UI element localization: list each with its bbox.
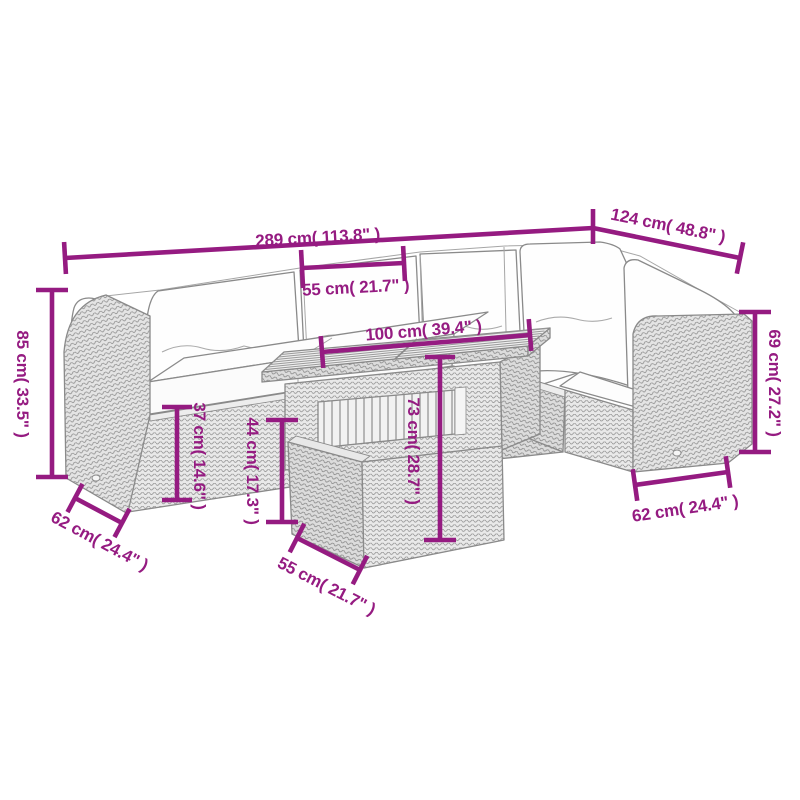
cube-right-panel (362, 446, 504, 568)
dimension-label: 62 cm( 24.4" ) (631, 491, 740, 526)
dimension-label: 124 cm( 48.8" ) (609, 205, 727, 247)
dimension-label: 44 cm( 17.3" ) (243, 417, 262, 524)
sofa-right-arm-panel (633, 314, 752, 472)
dimension-back-height-left: 85 cm( 33.5" ) (13, 290, 68, 477)
dimension-label: 73 cm( 28.7" ) (404, 397, 423, 504)
dimension-diagram: 289 cm( 113.8" ) 124 cm( 48.8" ) 55 cm( … (0, 0, 800, 800)
arm-drain-hole (673, 450, 681, 456)
dimension-label: 37 cm( 14.6" ) (190, 402, 209, 509)
arm-drain-hole (92, 475, 100, 481)
dimension-label: 85 cm( 33.5" ) (13, 330, 32, 437)
dimension-label: 69 cm( 27.2" ) (765, 329, 784, 436)
furniture-dimension-drawing: 289 cm( 113.8" ) 124 cm( 48.8" ) 55 cm( … (0, 0, 800, 800)
table-leg (455, 387, 466, 435)
dimension-label: 62 cm( 24.4" ) (48, 508, 152, 575)
dimension-label: 289 cm( 113.8" ) (255, 224, 381, 250)
cube-left-panel (288, 442, 364, 568)
